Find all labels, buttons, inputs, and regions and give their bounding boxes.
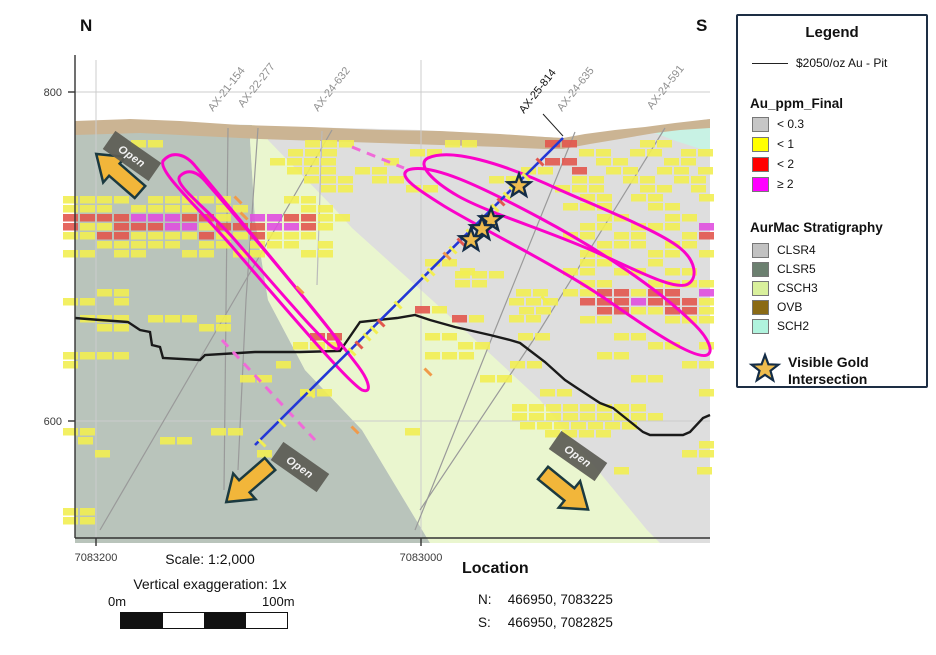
au-swatch-lt03: [752, 117, 769, 132]
au-cell: [563, 413, 578, 421]
au-cell: [648, 413, 663, 421]
au-cell: [597, 223, 612, 231]
au-cell: [80, 428, 95, 436]
au-cell: [304, 167, 319, 175]
au-cell: [442, 333, 457, 341]
au-cell: [536, 307, 551, 315]
au-cell: [301, 223, 316, 231]
au-cell: [114, 324, 129, 332]
au-cell: [631, 413, 646, 421]
au-cell: [597, 194, 612, 202]
au-cell: [647, 149, 662, 157]
strat-item-clsr5: CLSR5: [752, 261, 816, 277]
au-cell: [699, 361, 714, 369]
au-cell: [148, 223, 163, 231]
au-cell: [410, 149, 425, 157]
au-cell: [699, 389, 714, 397]
au-cell: [520, 422, 535, 430]
au-cell: [455, 280, 470, 288]
au-cell: [597, 280, 612, 288]
au-cell: [580, 413, 595, 421]
au-cell: [317, 389, 332, 397]
strat-label-csch3: CSCH3: [777, 281, 818, 295]
au-cell: [250, 214, 265, 222]
au-cell: [148, 140, 163, 148]
au-cell: [699, 307, 714, 315]
au-cell: [562, 140, 577, 148]
scalebar-seg-1: [121, 613, 163, 628]
au-cell: [131, 214, 146, 222]
au-cell: [165, 214, 180, 222]
au-cell: [318, 205, 333, 213]
au-cell: [572, 167, 587, 175]
au-cell: [284, 232, 299, 240]
au-cell: [318, 214, 333, 222]
scalebar-100m-label: 100m: [262, 594, 295, 609]
strat-item-clsr4: CLSR4: [752, 242, 816, 258]
au-cell: [589, 185, 604, 193]
au-swatch-ge2: [752, 177, 769, 192]
au-cell: [63, 205, 78, 213]
au-cell: [63, 517, 78, 525]
au-cell: [97, 289, 112, 297]
au-cell: [114, 232, 129, 240]
au-cell: [165, 196, 180, 204]
au-cell: [148, 232, 163, 240]
au-cell: [182, 315, 197, 323]
strat-swatch-sch2: [752, 319, 769, 334]
south-label: S: [696, 16, 707, 35]
au-cell: [538, 167, 553, 175]
au-cell: [631, 404, 646, 412]
au-cell: [114, 241, 129, 249]
au-cell: [472, 280, 487, 288]
au-cell: [80, 298, 95, 306]
au-cell: [97, 324, 112, 332]
au-cell: [165, 315, 180, 323]
au-cell: [250, 223, 265, 231]
drillhole-labels: AX-21-154 AX-22-277 AX-24-632 AX-25-814 …: [206, 61, 687, 116]
section-view: N S: [0, 0, 936, 655]
au-cell: [335, 214, 350, 222]
au-cell: [640, 176, 655, 184]
au-cell: [527, 361, 542, 369]
au-cell: [691, 176, 706, 184]
au-cell: [580, 316, 595, 324]
au-cell: [63, 508, 78, 516]
au-cell: [580, 232, 595, 240]
au-cell: [199, 241, 214, 249]
au-cell: [267, 241, 282, 249]
au-cell: [452, 315, 467, 323]
au-cell: [318, 250, 333, 258]
au-cell: [509, 298, 524, 306]
au-cell: [63, 352, 78, 360]
au-cell: [211, 428, 226, 436]
au-cell: [665, 250, 680, 258]
au-item-2: < 2: [752, 156, 794, 172]
location-n-value: 466950, 7083225: [508, 592, 613, 607]
au-cell: [665, 268, 680, 276]
au-cell: [339, 140, 354, 148]
au-label-lt2: < 2: [777, 157, 794, 171]
au-cell: [529, 413, 544, 421]
au-cell: [63, 250, 78, 258]
au-cell: [80, 205, 95, 213]
au-cell: [580, 298, 595, 306]
au-cell: [597, 352, 612, 360]
au-cell: [80, 352, 95, 360]
strat-item-ovb: OVB: [752, 299, 802, 315]
au-cell: [321, 158, 336, 166]
au-cell: [288, 149, 303, 157]
scalebar-seg-4: [246, 613, 288, 628]
au-cell: [322, 140, 337, 148]
au-cell: [596, 149, 611, 157]
au-cell: [665, 214, 680, 222]
au-cell: [338, 176, 353, 184]
au-cell: [80, 250, 95, 258]
au-cell: [563, 289, 578, 297]
au-cell: [597, 316, 612, 324]
au-cell: [78, 437, 93, 445]
au-cell: [304, 176, 319, 184]
au-label-lt1: < 1: [777, 137, 794, 151]
au-cell: [605, 422, 620, 430]
au-cell: [631, 241, 646, 249]
legend-title: Legend: [738, 24, 926, 41]
au-cell: [114, 250, 129, 258]
au-cell: [165, 232, 180, 240]
au-cell: [305, 140, 320, 148]
visible-gold-label-1: Visible Gold: [788, 354, 869, 371]
au-cell: [597, 241, 612, 249]
au-cell: [682, 361, 697, 369]
au-cell: [97, 232, 112, 240]
au-cell: [148, 214, 163, 222]
au-cell: [63, 232, 78, 240]
au-cell: [512, 404, 527, 412]
au-cell: [529, 404, 544, 412]
au-cell: [572, 176, 587, 184]
au-cell: [148, 315, 163, 323]
au-cell: [63, 298, 78, 306]
au-cell: [614, 289, 629, 297]
au-cell: [699, 450, 714, 458]
au-cell: [318, 241, 333, 249]
au-cell: [301, 205, 316, 213]
au-cell: [614, 333, 629, 341]
au-cell: [63, 361, 78, 369]
au-cell: [284, 196, 299, 204]
au-cell: [589, 176, 604, 184]
north-label: N: [80, 16, 92, 35]
strat-swatch-clsr4: [752, 243, 769, 258]
au-cell: [425, 333, 440, 341]
au-cell: [572, 185, 587, 193]
au-cell: [148, 205, 163, 213]
au-cell: [372, 167, 387, 175]
au-cell: [293, 342, 308, 350]
au-cell: [458, 342, 473, 350]
au-cell: [614, 467, 629, 475]
scalebar-seg-3: [204, 613, 246, 628]
au-cell: [321, 185, 336, 193]
au-cell: [131, 205, 146, 213]
au-cell: [631, 298, 646, 306]
au-cell: [631, 194, 646, 202]
au-cell: [165, 223, 180, 231]
au-cell: [533, 289, 548, 297]
au-cell: [516, 289, 531, 297]
au-cell: [580, 223, 595, 231]
au-cell: [284, 214, 299, 222]
au-cell: [526, 298, 541, 306]
au-cell: [97, 196, 112, 204]
strat-label-clsr5: CLSR5: [777, 262, 816, 276]
label-ax-24-632: AX-24-632: [311, 65, 353, 114]
au-cell: [681, 158, 696, 166]
au-cell: [489, 271, 504, 279]
au-cell: [469, 315, 484, 323]
au-cell: [699, 298, 714, 306]
au-cell: [657, 167, 672, 175]
au-swatch-lt1: [752, 137, 769, 152]
au-cell: [631, 333, 646, 341]
au-cell: [445, 140, 460, 148]
au-cell: [442, 352, 457, 360]
location-n-key: N:: [478, 592, 504, 607]
au-cell: [318, 223, 333, 231]
au-cell: [199, 324, 214, 332]
au-cell: [114, 352, 129, 360]
au-cell: [699, 194, 714, 202]
au-cell: [546, 404, 561, 412]
location-s-key: S:: [478, 615, 504, 630]
au-cell: [301, 232, 316, 240]
au-cell: [699, 223, 714, 231]
au-cell: [614, 241, 629, 249]
au-cell: [97, 352, 112, 360]
au-cell: [588, 422, 603, 430]
scale-text: Scale: 1:2,000: [130, 551, 290, 567]
au-cell: [182, 250, 197, 258]
au-cell: [509, 315, 524, 323]
au-cell: [535, 333, 550, 341]
strat-label-clsr4: CLSR4: [777, 243, 816, 257]
au-cell: [674, 176, 689, 184]
au-cell: [563, 203, 578, 211]
au-cell: [287, 158, 302, 166]
au-cell: [233, 205, 248, 213]
label-ax-24-591: AX-24-591: [645, 63, 687, 112]
au-cell: [614, 352, 629, 360]
au-cell: [579, 430, 594, 438]
location-row-s: S: 466950, 7082825: [478, 615, 613, 630]
au-cell: [648, 375, 663, 383]
strat-swatch-csch3: [752, 281, 769, 296]
legend-pit-item: $2050/oz Au - Pit: [752, 56, 887, 70]
au-cell: [674, 167, 689, 175]
au-cell: [287, 167, 302, 175]
au-cell: [459, 352, 474, 360]
au-cell: [131, 241, 146, 249]
au-cell: [665, 203, 680, 211]
au-cell: [462, 140, 477, 148]
au-cell: [372, 176, 387, 184]
au-cell: [423, 185, 438, 193]
x-tick-7083200: 7083200: [75, 552, 118, 564]
au-cell: [580, 259, 595, 267]
strat-section-title: AurMac Stratigraphy: [750, 220, 883, 235]
au-cell: [519, 307, 534, 315]
au-cell: [131, 223, 146, 231]
au-cell: [510, 361, 525, 369]
au-cell: [389, 176, 404, 184]
au-cell: [80, 517, 95, 525]
au-cell: [614, 232, 629, 240]
au-cell: [664, 158, 679, 166]
au-cell: [148, 241, 163, 249]
au-cell: [540, 389, 555, 397]
au-cell: [597, 413, 612, 421]
au-cell: [355, 167, 370, 175]
au-cell: [301, 196, 316, 204]
au-cell: [131, 250, 146, 258]
au-cell: [472, 271, 487, 279]
visible-gold-label-2: Intersection: [788, 371, 869, 388]
au-cell: [97, 205, 112, 213]
au-cell: [698, 149, 713, 157]
au-item-3: ≥ 2: [752, 176, 794, 192]
label-leader-ax-25-814: [543, 114, 563, 136]
vertical-exaggeration-text: Vertical exaggeration: 1x: [110, 576, 310, 592]
au-cell: [579, 149, 594, 157]
au-cell: [648, 250, 663, 258]
au-cell: [338, 185, 353, 193]
au-cell: [301, 214, 316, 222]
au-cell: [489, 176, 504, 184]
au-cell: [648, 259, 663, 267]
au-cell: [682, 241, 697, 249]
au-cell: [596, 430, 611, 438]
au-cell: [284, 223, 299, 231]
au-cell: [177, 437, 192, 445]
au-cell: [80, 223, 95, 231]
strat-swatch-clsr5: [752, 262, 769, 277]
au-cell: [657, 140, 672, 148]
au-cell: [699, 289, 714, 297]
strat-swatch-ovb: [752, 300, 769, 315]
au-cell: [301, 250, 316, 258]
au-cell: [455, 271, 470, 279]
au-cell: [114, 289, 129, 297]
au-cell: [545, 158, 560, 166]
au-cell: [97, 241, 112, 249]
au-cell: [228, 428, 243, 436]
au-cell: [480, 375, 495, 383]
au-cell: [63, 196, 78, 204]
location-s-value: 466950, 7082825: [508, 615, 613, 630]
au-cell: [597, 214, 612, 222]
strat-label-sch2: SCH2: [777, 319, 809, 333]
au-cell: [80, 232, 95, 240]
au-cell: [114, 214, 129, 222]
au-cell: [580, 404, 595, 412]
au-cell: [518, 333, 533, 341]
au-cell: [63, 223, 78, 231]
au-cell: [216, 315, 231, 323]
au-cell: [606, 167, 621, 175]
au-cell: [562, 158, 577, 166]
au-cell: [699, 316, 714, 324]
au-cell: [497, 375, 512, 383]
au-cell: [631, 289, 646, 297]
au-cell: [682, 214, 697, 222]
au-cell: [557, 389, 572, 397]
au-cell: [199, 232, 214, 240]
pit-label: $2050/oz Au - Pit: [796, 56, 887, 70]
au-cell: [267, 214, 282, 222]
au-cell: [304, 158, 319, 166]
au-cell: [648, 203, 663, 211]
au-cell: [276, 361, 291, 369]
au-cell: [114, 223, 129, 231]
au-cell: [257, 450, 272, 458]
au-cell: [270, 158, 285, 166]
gold-star-icon: [748, 352, 782, 386]
location-row-n: N: 466950, 7083225: [478, 592, 613, 607]
location-title: Location: [462, 560, 529, 578]
au-label-ge2: ≥ 2: [777, 177, 794, 191]
au-cell: [80, 508, 95, 516]
au-cell: [682, 298, 697, 306]
y-tick-800: 800: [44, 87, 62, 99]
au-cell: [537, 422, 552, 430]
au-cell: [165, 205, 180, 213]
legend-panel: Legend $2050/oz Au - Pit Au_ppm_Final < …: [736, 14, 928, 388]
au-cell: [665, 223, 680, 231]
au-cell: [640, 185, 655, 193]
au-cell: [97, 223, 112, 231]
au-cell: [682, 450, 697, 458]
au-cell: [321, 176, 336, 184]
au-cell: [648, 342, 663, 350]
y-tick-600: 600: [44, 416, 62, 428]
au-cell: [699, 250, 714, 258]
au-cell: [681, 149, 696, 157]
au-cell: [267, 232, 282, 240]
strat-label-ovb: OVB: [777, 300, 802, 314]
au-cell: [97, 214, 112, 222]
au-cell: [512, 413, 527, 421]
au-cell: [648, 307, 663, 315]
au-cell: [563, 404, 578, 412]
au-cell: [63, 214, 78, 222]
au-item-0: < 0.3: [752, 116, 804, 132]
x-tick-7083000: 7083000: [400, 552, 443, 564]
au-cell: [80, 214, 95, 222]
au-cell: [657, 185, 672, 193]
au-cell: [697, 467, 712, 475]
au-cell: [148, 196, 163, 204]
au-cell: [682, 232, 697, 240]
au-cell: [131, 232, 146, 240]
au-cell: [630, 149, 645, 157]
au-cell: [640, 140, 655, 148]
au-cell: [114, 298, 129, 306]
au-cell: [526, 315, 541, 323]
